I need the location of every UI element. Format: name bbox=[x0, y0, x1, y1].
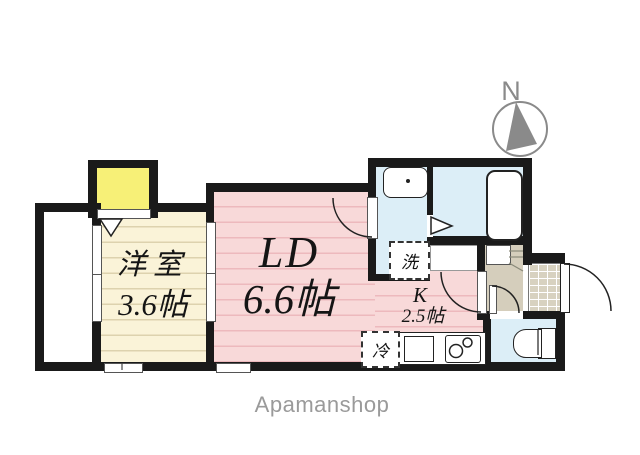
closet-wall-left bbox=[88, 160, 97, 218]
balcony-wall-bottom bbox=[35, 362, 93, 371]
closet-wall-top bbox=[88, 160, 158, 168]
floorplan-canvas: 洗 冷 N 洋室 3.6帖 LD 6.6帖 K 2.5帖 Apamanshop bbox=[0, 0, 640, 455]
washroom-door-leaf bbox=[367, 197, 378, 239]
toilet-door-leaf bbox=[489, 285, 497, 314]
western-room-size: 3.6帖 bbox=[93, 289, 213, 320]
washbasin bbox=[383, 167, 428, 198]
bathroom-door-gap bbox=[427, 215, 433, 237]
kitchen-door-leaf bbox=[477, 271, 487, 314]
stove-unit bbox=[445, 335, 481, 363]
front-door-leaf bbox=[560, 263, 570, 313]
western-room-name: 洋室 bbox=[117, 249, 189, 281]
refrigerator-box: 冷 bbox=[361, 331, 400, 368]
genkan-step-box bbox=[486, 245, 511, 265]
toilet-wall-bottom bbox=[483, 362, 565, 371]
toilet-bowl bbox=[513, 329, 542, 358]
brand-logo-text: Apamanshop bbox=[222, 392, 422, 418]
refrigerator-label: 冷 bbox=[372, 337, 389, 362]
western-bottom-window bbox=[104, 363, 143, 373]
closet-interior bbox=[97, 168, 149, 209]
kitchen-size: 2.5帖 bbox=[373, 307, 473, 326]
washing-machine-label: 洗 bbox=[401, 248, 418, 273]
bath-block-right-wall bbox=[523, 158, 532, 265]
kitchen-sink bbox=[404, 336, 434, 362]
living-dining-label: LD bbox=[219, 231, 359, 275]
balcony-wall-left bbox=[35, 203, 44, 371]
bathtub bbox=[486, 170, 523, 241]
entry-porch-tile bbox=[528, 263, 562, 313]
closet-folding-door bbox=[97, 209, 151, 219]
washing-machine-box: 洗 bbox=[389, 241, 430, 280]
north-label: N bbox=[485, 76, 537, 107]
ld-bottom-window bbox=[216, 363, 251, 373]
ld-top-wall bbox=[206, 183, 375, 192]
front-door-arc-icon bbox=[564, 264, 611, 311]
porch-top-wall bbox=[523, 253, 565, 263]
bath-block-top-wall bbox=[368, 158, 532, 167]
living-dining-size: 6.6帖 bbox=[219, 279, 359, 320]
storage-nook bbox=[430, 245, 480, 271]
western-room-label: 洋室 bbox=[93, 251, 213, 280]
compass-circle bbox=[492, 101, 548, 157]
kitchen-label: K bbox=[370, 285, 470, 306]
